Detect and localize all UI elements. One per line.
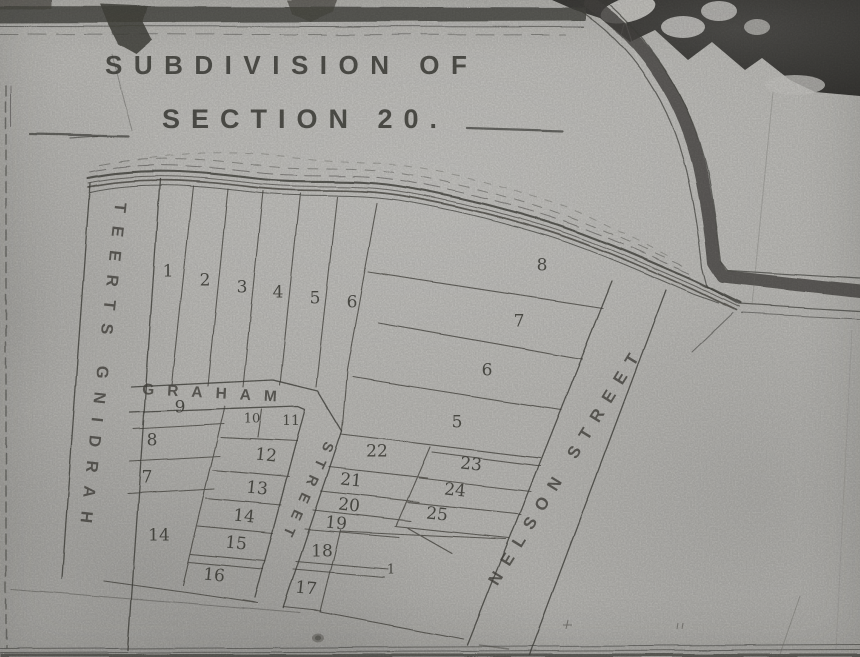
film-grain-overlay xyxy=(0,0,860,657)
plat-map-scan: SUBDIVISION OF SECTION 20. TEERTS GNIDRA… xyxy=(0,0,860,657)
plat-map-svg: SUBDIVISION OF SECTION 20. TEERTS GNIDRA… xyxy=(0,0,860,657)
